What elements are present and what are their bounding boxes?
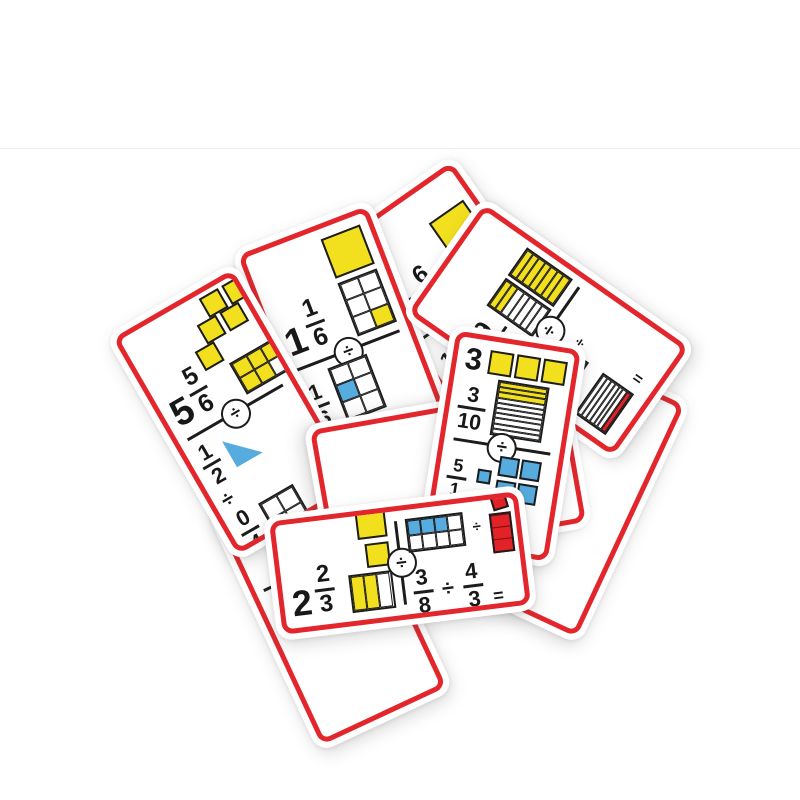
whole-square <box>540 359 567 386</box>
whole-square <box>476 468 492 484</box>
whole-square <box>487 350 514 377</box>
improper-whole-piece <box>488 511 515 553</box>
improper-fraction-graphic <box>486 492 531 554</box>
divide-operator: ÷ <box>472 518 482 536</box>
fraction-numerator: 2 <box>313 563 333 588</box>
fraction-stack: 43 <box>460 560 486 611</box>
problem-layout: ÷38÷43= <box>404 506 516 606</box>
product-photo: 556÷12÷04=116÷16÷÷11=168÷1418÷2914÷÷=331… <box>0 0 800 800</box>
answer-fraction: 310 <box>454 382 489 433</box>
improper-extra-piece <box>489 493 508 511</box>
fraction-denominator: 10 <box>454 409 485 433</box>
fraction-denominator: 3 <box>317 592 337 617</box>
fraction-denominator: 6 <box>193 389 220 419</box>
fraction-square-graphic <box>354 507 387 540</box>
answer-layout: 223 <box>283 520 395 620</box>
card-face: 223÷÷38÷43= <box>269 491 531 635</box>
divide-operator: ÷ <box>440 575 455 602</box>
card-problem-half: ÷38÷43= <box>395 497 525 615</box>
photo-edge-line <box>0 148 800 149</box>
fraction-stack: 23 <box>312 563 338 618</box>
fraction-grid-graphic <box>337 268 397 336</box>
whole-number: 2 <box>290 588 313 621</box>
answer-rows: 3310 <box>454 345 566 444</box>
problem-fraction-2: 43 <box>460 560 486 611</box>
equals-sign: = <box>628 370 649 392</box>
fraction-stack: 38 <box>410 566 436 617</box>
fraction-denominator: 8 <box>415 594 434 617</box>
equals-sign: = <box>492 585 509 608</box>
fraction-grid-graphic <box>404 512 466 553</box>
fraction-numerator: 1 <box>297 295 322 324</box>
card-answer-half: 223 <box>275 512 405 630</box>
grid-cell <box>376 572 393 607</box>
fraction-numerator: 4 <box>462 560 481 583</box>
answer-graphics <box>320 224 396 336</box>
fraction-square-graphic <box>320 224 374 278</box>
problem-graphics-row: ÷ <box>403 494 512 564</box>
grid-cell <box>448 529 463 546</box>
fraction-denominator: 3 <box>465 588 484 611</box>
whole-square <box>497 455 520 478</box>
half-square-triangle <box>222 426 263 467</box>
whole-number: 3 <box>463 345 483 373</box>
fraction-numerator: 3 <box>464 383 483 405</box>
answer-fraction: 223 <box>288 563 338 621</box>
whole-square <box>514 354 541 381</box>
answer-fraction: 3 <box>463 345 483 373</box>
problem-fraction-1: 38 <box>410 566 436 617</box>
fraction-stack: 310 <box>454 382 489 433</box>
fraction-numerator: 3 <box>412 566 431 589</box>
whole-square <box>519 459 542 482</box>
whole-square <box>195 341 225 371</box>
half-square-graphic <box>222 426 263 467</box>
fraction-grid-graphic <box>348 570 396 613</box>
fraction-denominator: 6 <box>308 323 333 352</box>
fraction-stripes-graphic <box>574 373 634 436</box>
fraction-numerator: 5 <box>450 457 467 476</box>
problem-text-row: 38÷43= <box>410 556 518 617</box>
